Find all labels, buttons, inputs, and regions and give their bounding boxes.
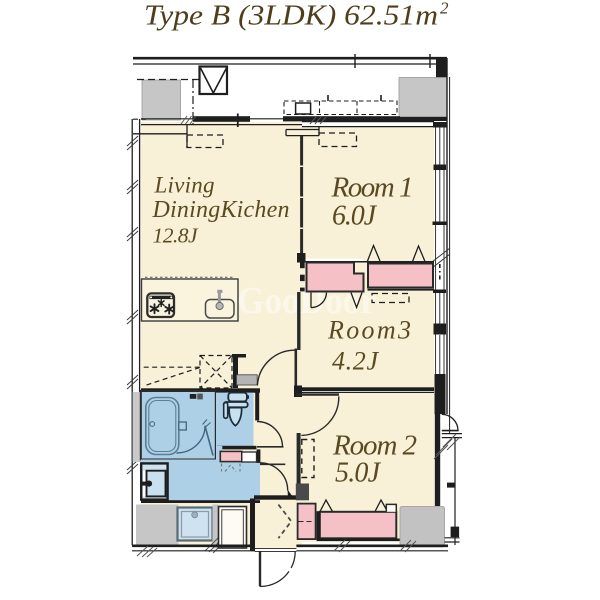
svg-text:Type B (3LDK) 62.51m: Type B (3LDK) 62.51m	[144, 0, 438, 32]
svg-text:DiningKichen: DiningKichen	[152, 197, 290, 223]
svg-text:5.0J: 5.0J	[335, 458, 382, 489]
svg-text:6.0J: 6.0J	[332, 201, 378, 232]
svg-text:4.2J: 4.2J	[332, 347, 379, 376]
svg-text:Room 1: Room 1	[331, 172, 414, 204]
svg-text:12.8J: 12.8J	[153, 224, 199, 248]
svg-text:Room3: Room3	[327, 316, 411, 345]
svg-text:2: 2	[440, 0, 449, 18]
svg-text:Living: Living	[154, 173, 215, 198]
